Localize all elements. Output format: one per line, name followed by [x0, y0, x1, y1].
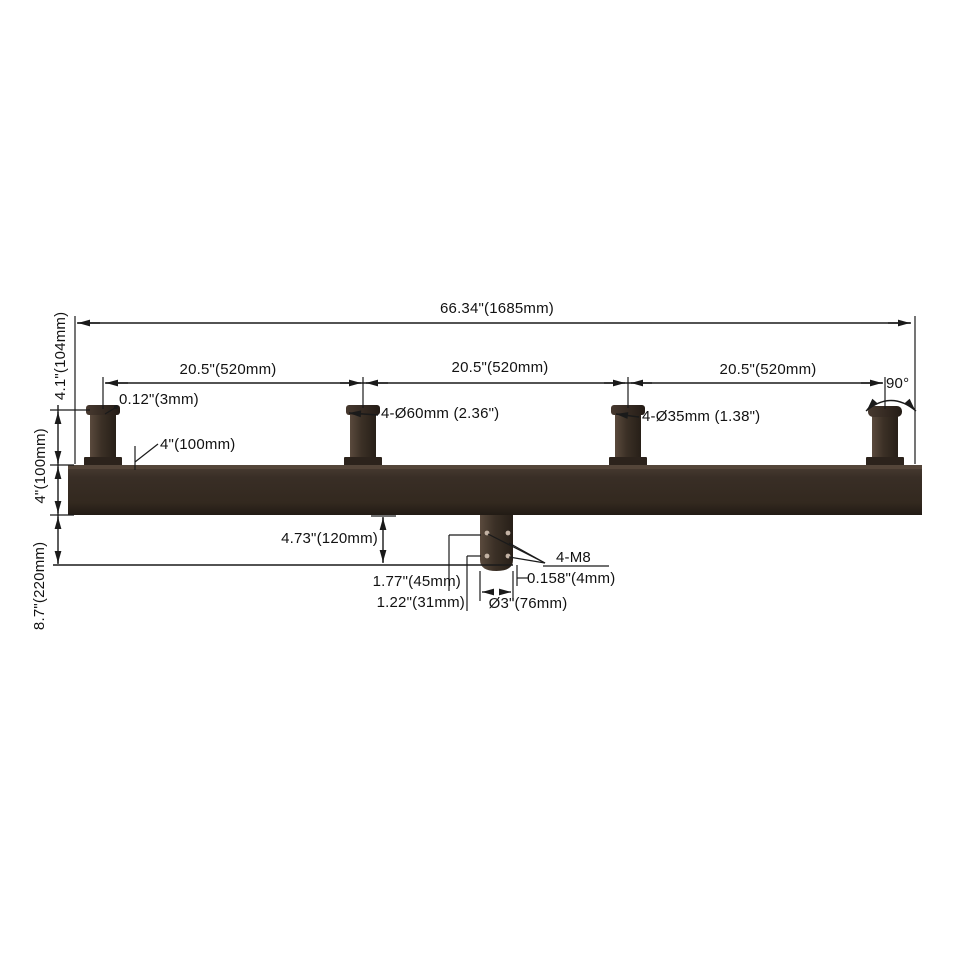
dim-tenon-angle-label: 90°: [886, 376, 909, 392]
dim-tenon-od-small-label: 4-Ø35mm (1.38"): [642, 409, 760, 425]
bolt-hole: [485, 554, 490, 559]
slipfitter-post: [480, 515, 513, 571]
drawing-canvas: [0, 0, 960, 960]
dim-slipfitter-id-label: Ø3"(76mm): [468, 596, 588, 612]
dim-bar-side-label: 4"(100mm): [160, 437, 235, 453]
dim-bar-height-label: 4"(100mm): [33, 411, 49, 521]
dim-bolt-upper-offset-label: 1.77"(45mm): [343, 574, 461, 590]
dim-tenon-lip-label: 0.12"(3mm): [119, 392, 199, 408]
technical-drawing: 66.34"(1685mm) 20.5"(520mm) 20.5"(520mm)…: [0, 0, 960, 960]
bolt-hole: [506, 531, 511, 536]
bracket-structure: [68, 405, 922, 571]
main-bar: [68, 465, 922, 515]
dim-below-bar-total-label: 8.7"(220mm): [32, 526, 48, 646]
dim-tenon-od-large-label: 4-Ø60mm (2.36"): [381, 406, 499, 422]
dim-slipfitter-depth-label: 4.73"(120mm): [250, 531, 378, 547]
dim-wall-thickness-label: 0.158"(4mm): [527, 571, 615, 587]
dim-spacing-2-label: 20.5"(520mm): [420, 360, 580, 376]
dim-spacing-3-label: 20.5"(520mm): [688, 362, 848, 378]
dim-total-width-label: 66.34"(1685mm): [377, 301, 617, 317]
dim-spacing-1-label: 20.5"(520mm): [148, 362, 308, 378]
dim-tenon-height-label: 4.1"(104mm): [53, 296, 69, 416]
dim-bolt-lower-offset-label: 1.22"(31mm): [347, 595, 465, 611]
dim-bolt-spec-label: 4-M8: [556, 550, 591, 566]
